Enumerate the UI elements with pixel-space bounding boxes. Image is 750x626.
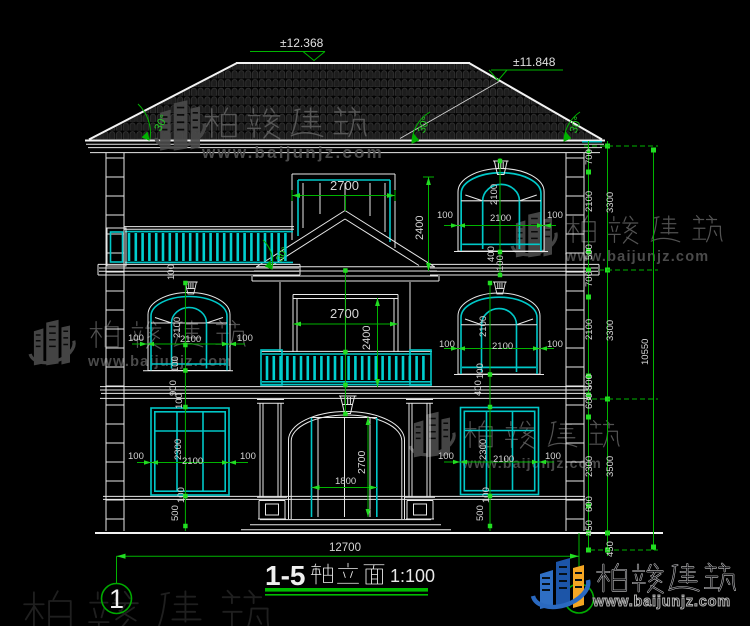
svg-text:100: 100 <box>547 339 563 350</box>
svg-text:2100: 2100 <box>180 334 201 345</box>
svg-text:1:100: 1:100 <box>390 566 435 586</box>
svg-text:500: 500 <box>584 244 595 260</box>
svg-text:2100: 2100 <box>584 191 595 212</box>
svg-text:3500: 3500 <box>605 456 616 477</box>
svg-text:2400: 2400 <box>414 216 426 240</box>
svg-text:100: 100 <box>495 255 506 271</box>
svg-text:2100: 2100 <box>489 184 500 205</box>
svg-text:700: 700 <box>584 149 595 165</box>
svg-text:www.baijunjz.com: www.baijunjz.com <box>592 594 731 610</box>
svg-text:100: 100 <box>128 333 144 344</box>
svg-text:500: 500 <box>475 505 486 521</box>
svg-text:100: 100 <box>237 333 253 344</box>
svg-text:1-5: 1-5 <box>265 560 305 591</box>
svg-text:2400: 2400 <box>361 326 373 350</box>
svg-text:1800: 1800 <box>335 476 356 487</box>
svg-text:100: 100 <box>240 451 256 462</box>
svg-text:450: 450 <box>584 520 595 536</box>
svg-text:www.baijunjz.com: www.baijunjz.com <box>87 354 232 370</box>
svg-text:2100: 2100 <box>172 317 183 338</box>
svg-text:2300: 2300 <box>478 439 489 460</box>
svg-text:1: 1 <box>109 584 124 614</box>
svg-text:10550: 10550 <box>640 339 651 365</box>
svg-text:3300: 3300 <box>605 320 616 341</box>
svg-text:2700: 2700 <box>356 450 368 474</box>
svg-text:100: 100 <box>547 210 563 221</box>
svg-text:600: 600 <box>584 496 595 512</box>
svg-text:2100: 2100 <box>584 319 595 340</box>
svg-text:500: 500 <box>170 505 181 521</box>
svg-text:2100: 2100 <box>492 341 513 352</box>
svg-text:700: 700 <box>584 271 595 287</box>
svg-text:2100: 2100 <box>493 454 514 465</box>
svg-text:www.baijunjz.com: www.baijunjz.com <box>201 143 384 162</box>
svg-text:600: 600 <box>584 393 595 409</box>
svg-text:100: 100 <box>475 363 486 379</box>
svg-text:400: 400 <box>473 380 484 396</box>
svg-text:2700: 2700 <box>330 178 359 193</box>
svg-text:100: 100 <box>439 339 455 350</box>
svg-text:100: 100 <box>128 451 144 462</box>
svg-text:100: 100 <box>545 451 561 462</box>
svg-text:2700: 2700 <box>330 306 359 321</box>
svg-text:100: 100 <box>438 451 454 462</box>
svg-text:2300: 2300 <box>584 456 595 477</box>
svg-text:2100: 2100 <box>478 316 489 337</box>
svg-text:100: 100 <box>166 264 177 280</box>
svg-text:±11.848: ±11.848 <box>513 55 556 69</box>
svg-text:2100: 2100 <box>182 456 203 467</box>
svg-text:100: 100 <box>437 210 453 221</box>
svg-text:2100: 2100 <box>490 213 511 224</box>
svg-text:450: 450 <box>605 541 616 557</box>
svg-text:3300: 3300 <box>605 192 616 213</box>
svg-text:12700: 12700 <box>329 542 361 554</box>
svg-text:±12.368: ±12.368 <box>280 36 324 50</box>
svg-text:100: 100 <box>170 356 181 372</box>
svg-text:500: 500 <box>584 374 595 390</box>
